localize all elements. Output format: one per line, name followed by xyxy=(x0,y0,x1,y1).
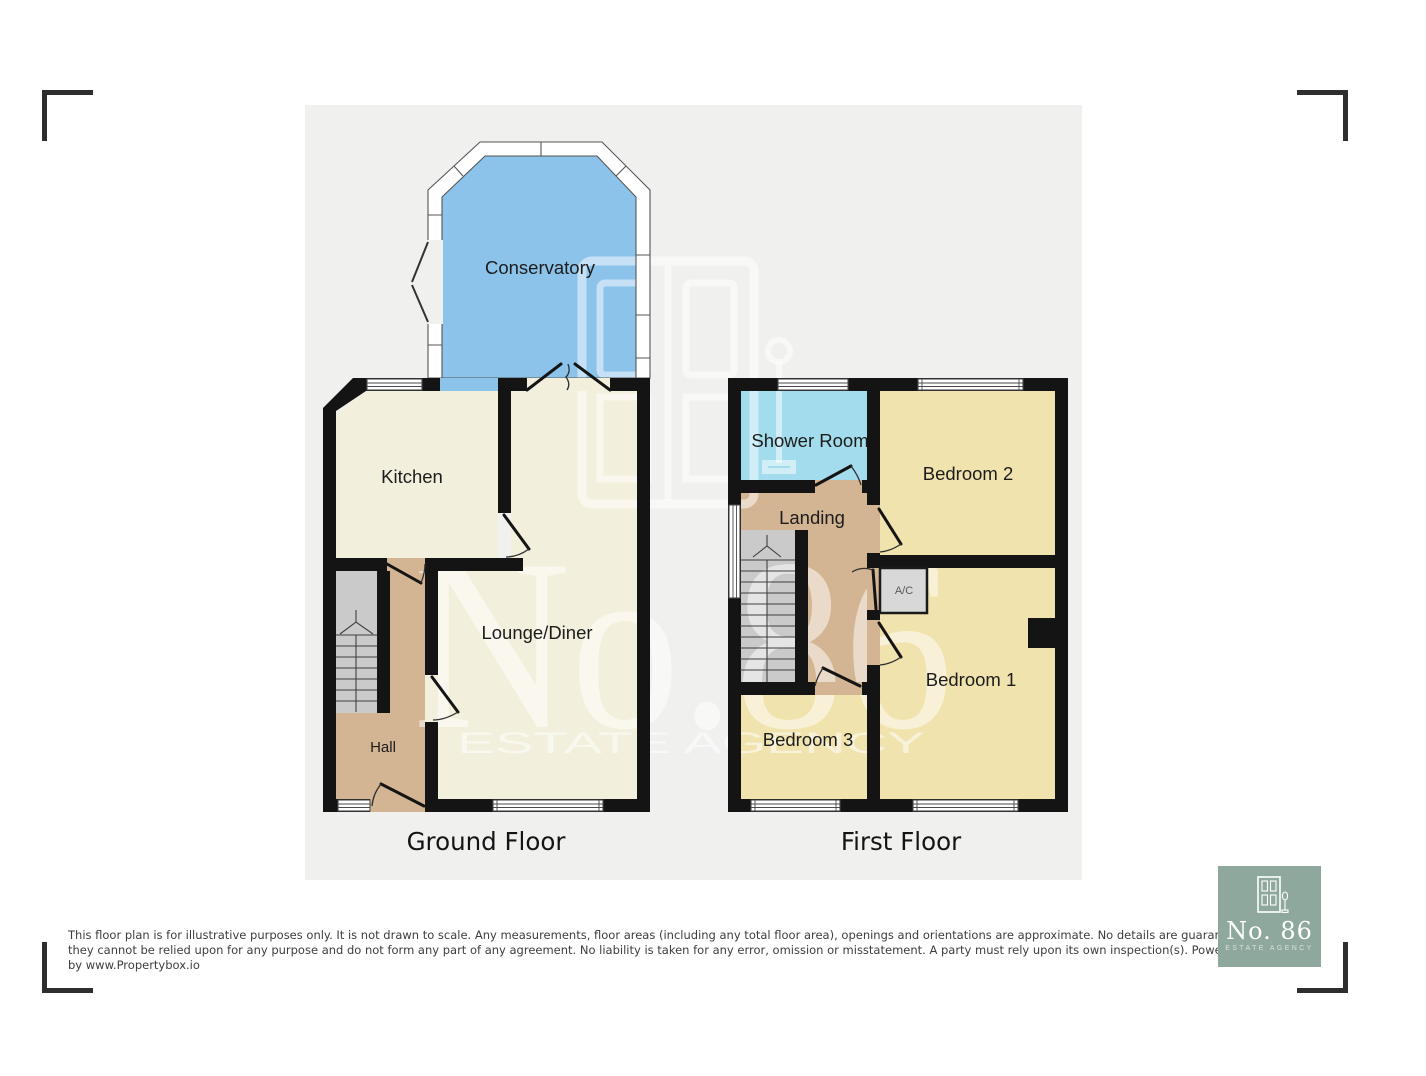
bedroom1-window xyxy=(913,800,1018,811)
shower-window xyxy=(778,379,848,390)
hall-label: Hall xyxy=(370,739,396,756)
lounge-window xyxy=(493,800,603,811)
bedroom3-window xyxy=(751,800,840,811)
hall-window xyxy=(338,800,370,811)
kitchen-window xyxy=(367,379,422,390)
agency-logo: No. 86 ESTATE AGENCY xyxy=(1218,866,1321,967)
kitchen-label: Kitchen xyxy=(381,466,443,487)
bedroom3-label: Bedroom 3 xyxy=(763,729,854,750)
logo-door-icon xyxy=(1245,874,1295,918)
first-floor-title: First Floor xyxy=(841,827,962,856)
bedroom2-label: Bedroom 2 xyxy=(923,463,1014,484)
chimney-breast xyxy=(1028,618,1068,648)
ground-floor-title: Ground Floor xyxy=(407,827,567,856)
disclaimer-line-2: they cannot be relied upon for any purpo… xyxy=(68,943,1208,958)
logo-name: No. 86 xyxy=(1226,918,1313,944)
conservatory-door-gap xyxy=(426,240,443,324)
bedroom1-label: Bedroom 1 xyxy=(926,669,1017,690)
floor-titles: Ground Floor First Floor xyxy=(407,827,962,856)
conservatory-label: Conservatory xyxy=(485,257,596,278)
logo-tagline: ESTATE AGENCY xyxy=(1225,945,1314,952)
floorplan-drawing: No.86 ESTATE AGENCY xyxy=(305,105,1082,880)
conservatory-door-leaf-1 xyxy=(412,242,428,282)
floorplan-page: No.86 ESTATE AGENCY xyxy=(0,0,1426,1076)
shower-label: Shower Room xyxy=(751,430,868,451)
conservatory-door-leaf-2 xyxy=(412,285,428,322)
bedroom2-window xyxy=(918,379,1023,390)
landing-label: Landing xyxy=(779,507,845,528)
disclaimer-line-3: by www.Propertybox.io xyxy=(68,958,1208,973)
corner-bracket-top-right xyxy=(1297,90,1348,141)
ac-label: A/C xyxy=(895,585,913,597)
lounge-label: Lounge/Diner xyxy=(481,622,592,643)
corner-bracket-top-left xyxy=(42,90,93,141)
disclaimer-text: This floor plan is for illustrative purp… xyxy=(68,928,1208,973)
watermark-tagline: ESTATE AGENCY xyxy=(457,727,925,760)
disclaimer-line-1: This floor plan is for illustrative purp… xyxy=(68,928,1208,943)
landing-window xyxy=(729,505,740,598)
floorplan-panel: No.86 ESTATE AGENCY xyxy=(305,105,1082,880)
